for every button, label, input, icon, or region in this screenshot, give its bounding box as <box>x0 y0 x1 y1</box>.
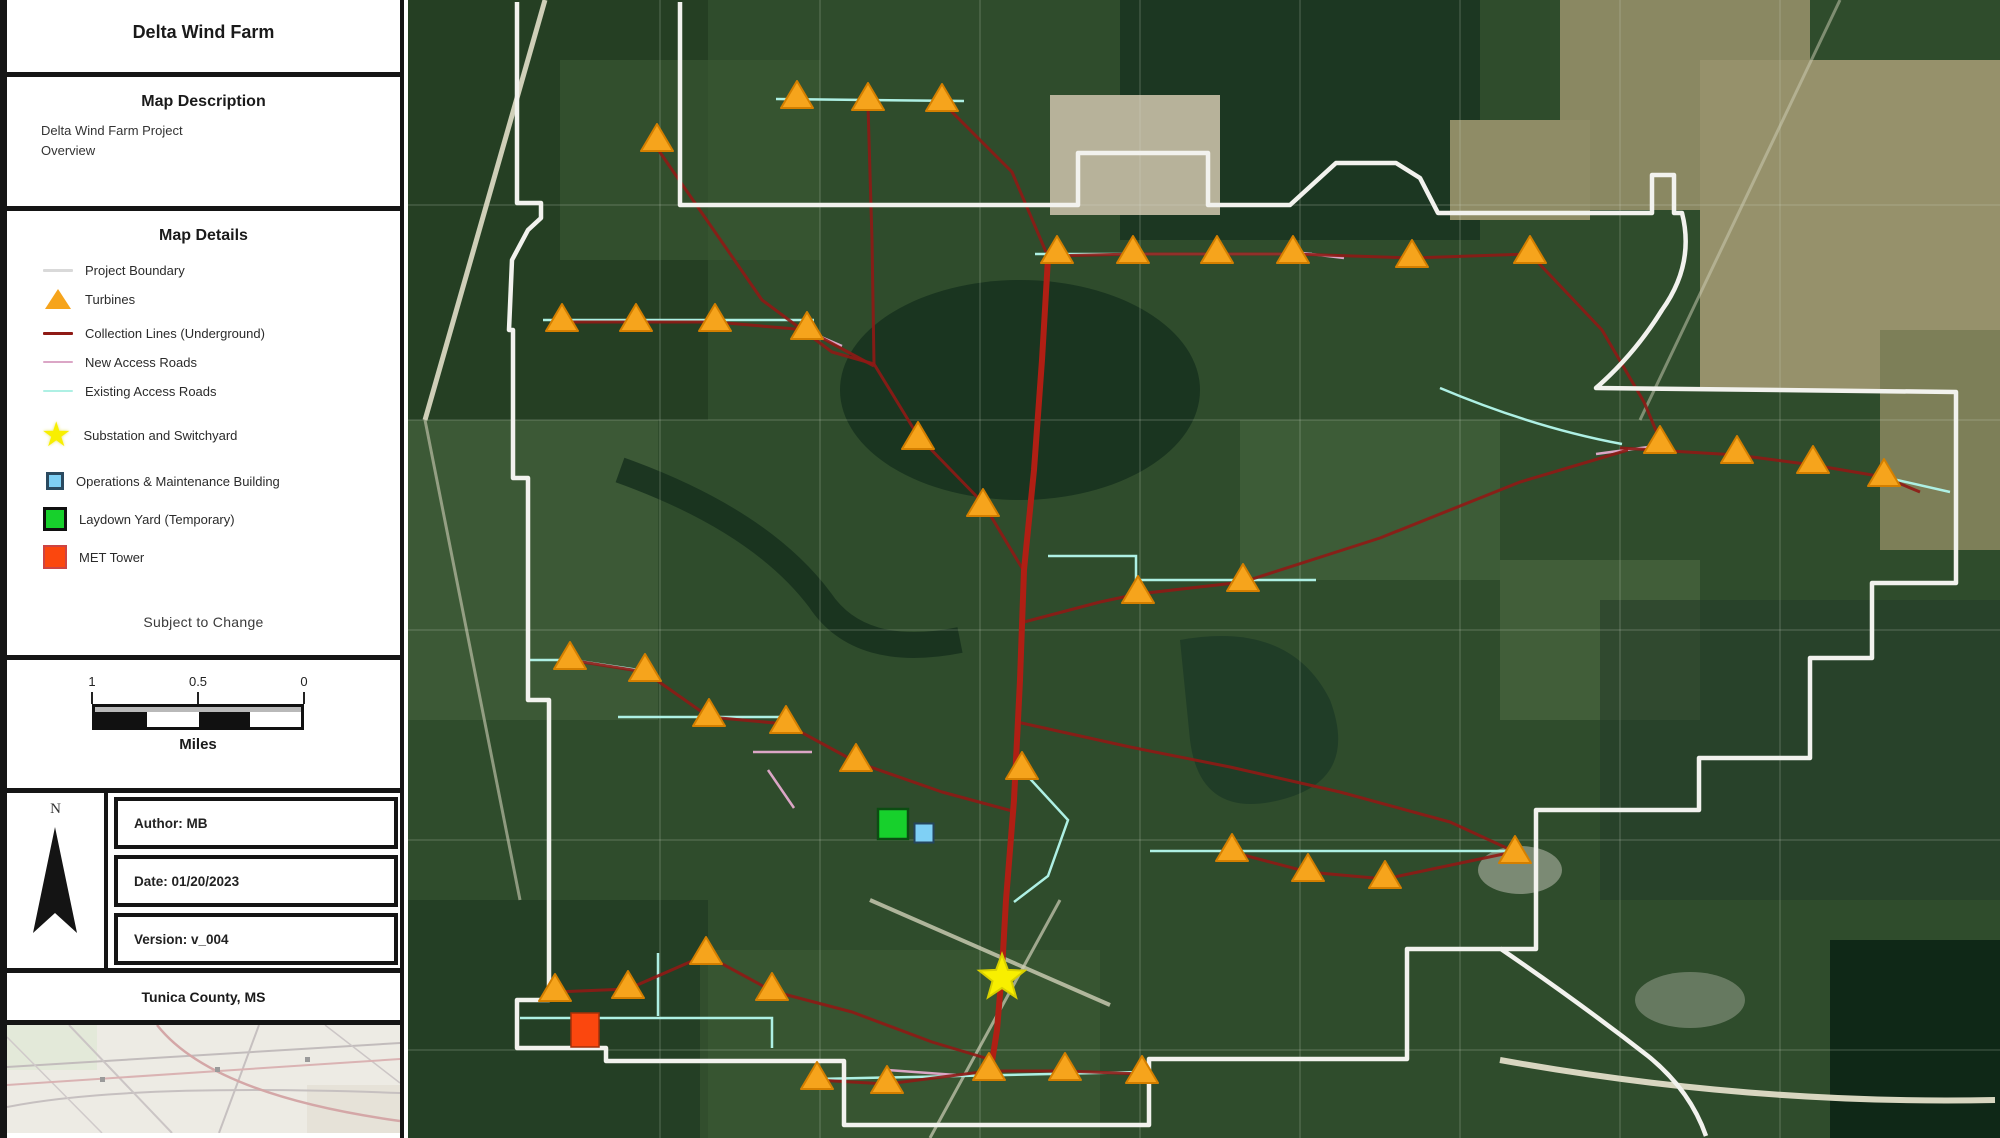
inset-map-block <box>7 1025 400 1133</box>
inset-locator-map[interactable] <box>7 1025 400 1133</box>
north-label: N <box>7 801 104 818</box>
legend-item-new-access-roads: New Access Roads <box>43 351 400 373</box>
title-block: Delta Wind Farm <box>7 0 400 77</box>
version-row: Version: v_004 <box>114 913 398 965</box>
legend-item-project-boundary: Project Boundary <box>43 259 400 281</box>
meta-rows: Author: MB Date: 01/20/2023 Version: v_0… <box>108 793 400 968</box>
project-boundary-swatch <box>43 269 73 272</box>
scale-label-1: 1 <box>88 674 95 689</box>
legend-item-om-building: Operations & Maintenance Building <box>43 464 400 498</box>
date-row: Date: 01/20/2023 <box>114 855 398 907</box>
legend-block: Map Details Project Boundary Turbines Co… <box>7 211 400 660</box>
author-row: Author: MB <box>114 797 398 849</box>
scale-segment <box>199 712 250 727</box>
scale-label-05: 0.5 <box>189 674 207 689</box>
satellite-imagery <box>408 0 2000 1138</box>
county-block: Tunica County, MS <box>7 973 400 1025</box>
north-arrow-icon <box>7 821 104 961</box>
scale-segment <box>147 712 199 727</box>
scale-unit-label: Miles <box>92 736 304 753</box>
map-description-text: Delta Wind Farm Project Overview <box>41 121 400 161</box>
scale-label-0: 0 <box>300 674 307 689</box>
collection-line-swatch <box>43 332 73 335</box>
map-details-heading: Map Details <box>7 227 400 245</box>
meta-block: N Author: MB Date: 01/20/2023 Version: v… <box>7 793 400 973</box>
scale-tick <box>303 692 305 704</box>
new-access-road-swatch <box>43 361 73 363</box>
om-building-marker[interactable] <box>915 824 934 843</box>
laydown-yard-swatch <box>43 507 67 531</box>
map-description-block: Map Description Delta Wind Farm Project … <box>7 77 400 211</box>
met-tower-marker[interactable] <box>571 1013 599 1047</box>
legend-item-met-tower: MET Tower <box>43 540 400 574</box>
legend-item-laydown-yard: Laydown Yard (Temporary) <box>43 502 400 536</box>
scale-segment <box>95 712 147 727</box>
info-panel: Delta Wind Farm Map Description Delta Wi… <box>0 0 404 1138</box>
legend-item-existing-access-roads: Existing Access Roads <box>43 380 400 402</box>
substation-star-icon: ★ <box>41 420 71 450</box>
met-tower-swatch <box>43 545 67 569</box>
om-building-swatch <box>46 472 64 490</box>
legend-item-collection-lines: Collection Lines (Underground) <box>43 322 400 344</box>
north-arrow-cell: N <box>7 793 108 968</box>
subject-to-change-note: Subject to Change <box>7 614 400 630</box>
existing-access-road-swatch <box>43 390 73 392</box>
map-description-heading: Map Description <box>7 93 400 111</box>
legend-item-substation: ★ Substation and Switchyard <box>43 418 400 452</box>
page-title: Delta Wind Farm <box>7 22 400 43</box>
county-label: Tunica County, MS <box>7 989 400 1005</box>
legend-item-turbines: Turbines <box>43 288 400 310</box>
turbine-icon <box>45 289 71 309</box>
scale-tick <box>91 692 93 704</box>
scale-segment <box>250 712 301 727</box>
project-map[interactable] <box>408 0 2000 1138</box>
scale-bar-block: 1 0.5 0 Miles <box>7 660 400 793</box>
laydown-yard-marker[interactable] <box>878 809 908 839</box>
scale-bar <box>92 704 304 730</box>
scale-tick <box>197 692 199 704</box>
map-exhibit: Delta Wind Farm Map Description Delta Wi… <box>0 0 2000 1138</box>
